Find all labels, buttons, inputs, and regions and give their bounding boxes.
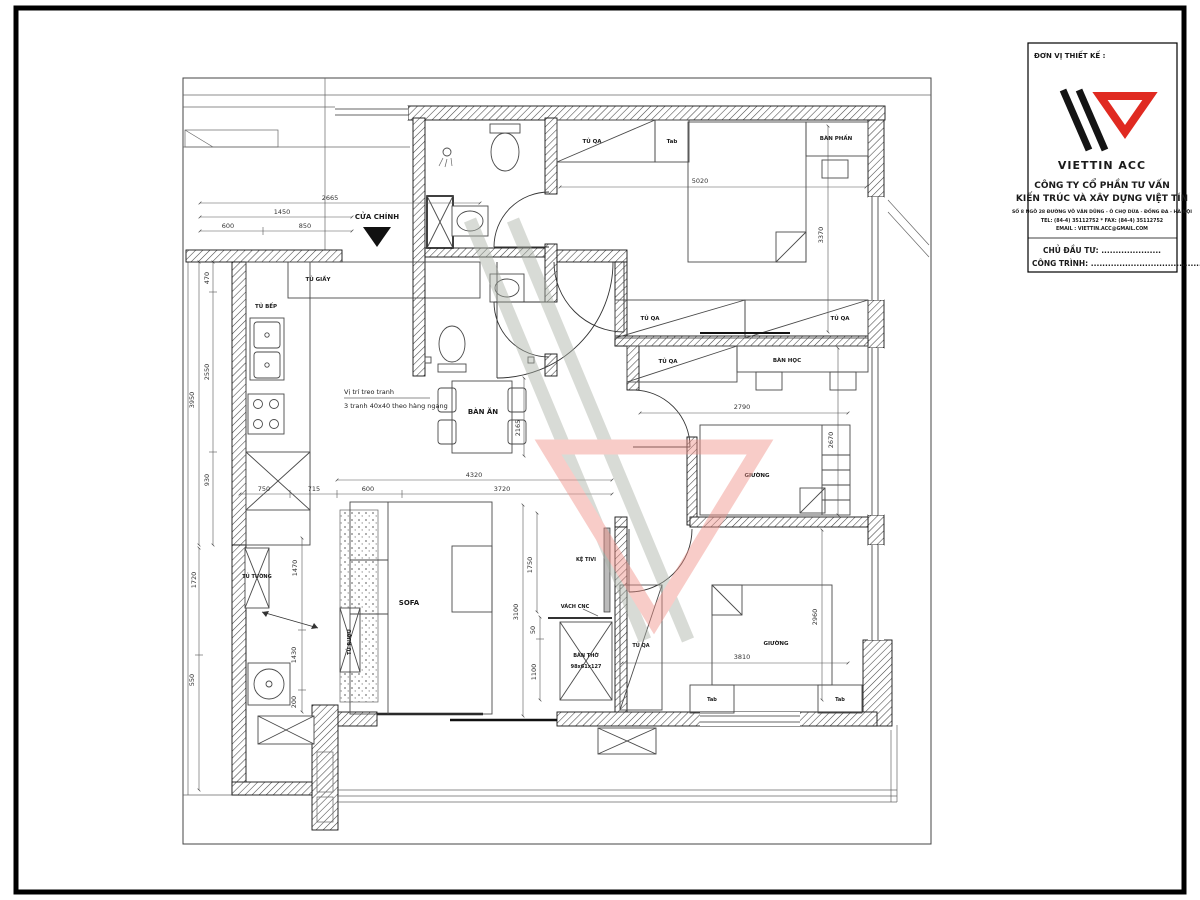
dim-3810: 3810 xyxy=(734,653,751,661)
dim-550: 550 xyxy=(188,674,196,686)
stone-feature-wall xyxy=(340,510,378,702)
dim-3720: 3720 xyxy=(494,485,511,493)
dim-3370: 3370 xyxy=(817,227,825,244)
dim-1450: 1450 xyxy=(274,208,291,216)
dim-600-top: 600 xyxy=(222,222,234,230)
dim-1100: 1100 xyxy=(530,664,538,681)
designer-label: ĐƠN VỊ THIẾT KẾ : xyxy=(1034,50,1106,60)
drawing-sheet: 2665 1450 600 850 3950 470 2550 930 1720… xyxy=(0,0,1200,900)
dim-750: 750 xyxy=(258,485,270,493)
dim-1470: 1470 xyxy=(291,560,299,577)
dining-table xyxy=(452,381,512,453)
label-altar-1: BÀN THỜ xyxy=(573,652,599,659)
dim-600-mid: 600 xyxy=(362,485,374,493)
bed xyxy=(688,122,806,262)
project-field: CÔNG TRÌNH: ............................… xyxy=(1032,259,1200,268)
label-altar-2: 98x61x127 xyxy=(571,664,602,670)
label-nightstand-b1: Tab xyxy=(667,139,678,145)
bedroom-2 xyxy=(627,346,868,515)
stove-icon xyxy=(248,394,284,434)
toilet-icon xyxy=(491,133,519,171)
dim-850: 850 xyxy=(299,222,311,230)
note-picture-line1: Vị trí treo tranh xyxy=(344,388,394,396)
label-wine-cabinet: TỦ RƯỢU xyxy=(345,629,353,655)
label-dressing-table: BÀN PHẤN xyxy=(820,134,853,142)
label-wall-cabinet: TỦ TƯỜNG xyxy=(242,572,271,580)
dim-1430: 1430 xyxy=(290,647,298,664)
dim-1750: 1750 xyxy=(526,557,534,574)
logo-name: VIETTIN ACC xyxy=(1058,159,1146,172)
dim-50: 50 xyxy=(529,626,537,634)
dim-2790: 2790 xyxy=(734,403,751,411)
entrance-arrow-icon xyxy=(363,227,391,247)
bedroom-1-door xyxy=(554,262,624,332)
dim-3950: 3950 xyxy=(188,392,196,409)
floor-drain-icon xyxy=(425,357,431,363)
dim-2960: 2960 xyxy=(811,609,819,626)
dim-5020: 5020 xyxy=(692,177,709,185)
dim-2165: 2165 xyxy=(514,420,522,437)
label-kitchen-cabinet: TỦ BẾP xyxy=(255,302,277,310)
chair-icon xyxy=(830,372,856,390)
label-bed-b3: GIƯỜNG xyxy=(763,640,789,647)
dim-2550: 2550 xyxy=(203,364,211,381)
dim-470: 470 xyxy=(203,272,211,284)
technical-shaft xyxy=(427,196,453,248)
chair-icon xyxy=(756,372,782,390)
company-email: EMAIL : VIETTIN.ACC@GMAIL.COM xyxy=(1056,226,1148,232)
note-picture-line2: 3 tranh 40x40 theo hàng ngang xyxy=(344,402,448,410)
label-wardrobe-b1-low: TỦ QA xyxy=(640,314,660,322)
dim-715: 715 xyxy=(308,485,320,493)
shower-icon xyxy=(443,148,451,156)
label-tv-shelf: KỆ TIVI xyxy=(576,555,596,563)
label-wardrobe-b2: TỦ QA xyxy=(658,357,678,365)
title-block: ĐƠN VỊ THIẾT KẾ : VIETTIN ACC CÔNG TY CỔ… xyxy=(1012,43,1200,272)
label-nightstand-b3-left: Tab xyxy=(707,697,717,703)
floor-plan-drawing: 2665 1450 600 850 3950 470 2550 930 1720… xyxy=(0,0,1200,900)
dim-4320: 4320 xyxy=(466,471,483,479)
label-wardrobe-b1-low2: TỦ QA xyxy=(830,314,850,322)
label-sofa: SOFA xyxy=(399,599,420,607)
balcony xyxy=(317,725,897,822)
coffee-table xyxy=(452,546,492,612)
utility-door xyxy=(262,612,318,628)
label-main-entrance: CỬA CHÍNH xyxy=(355,211,399,221)
investor-field: CHỦ ĐẦU TƯ: ..................... xyxy=(1043,245,1161,255)
bed xyxy=(712,585,832,685)
label-study-desk: BÀN HỌC xyxy=(773,357,801,364)
dim-200: 200 xyxy=(290,696,298,708)
dim-1720: 1720 xyxy=(190,572,198,589)
label-dining-table: BÀN ĂN xyxy=(468,407,498,416)
dim-2665: 2665 xyxy=(322,194,339,202)
company-tel: TEL: (84-4) 35112752 * FAX: (84-4) 35112… xyxy=(1041,218,1163,224)
bedroom-2-door xyxy=(633,390,690,447)
label-wardrobe-b1: TỦ QA xyxy=(582,137,602,145)
label-cnc-partition: VÁCH CNC xyxy=(561,603,590,610)
label-nightstand-b3-right: Tab xyxy=(835,697,845,703)
label-shoe-cabinet: TỦ GIẦY xyxy=(306,274,332,283)
kitchen-sink-icon xyxy=(250,318,284,380)
stool xyxy=(822,160,848,178)
dim-2670: 2670 xyxy=(827,432,835,449)
dim-3100: 3100 xyxy=(512,604,520,621)
toilet-icon xyxy=(439,326,465,362)
study-desk xyxy=(737,346,868,372)
dim-930: 930 xyxy=(203,474,211,486)
label-wardrobe-b3: TỦ QA xyxy=(632,641,649,649)
